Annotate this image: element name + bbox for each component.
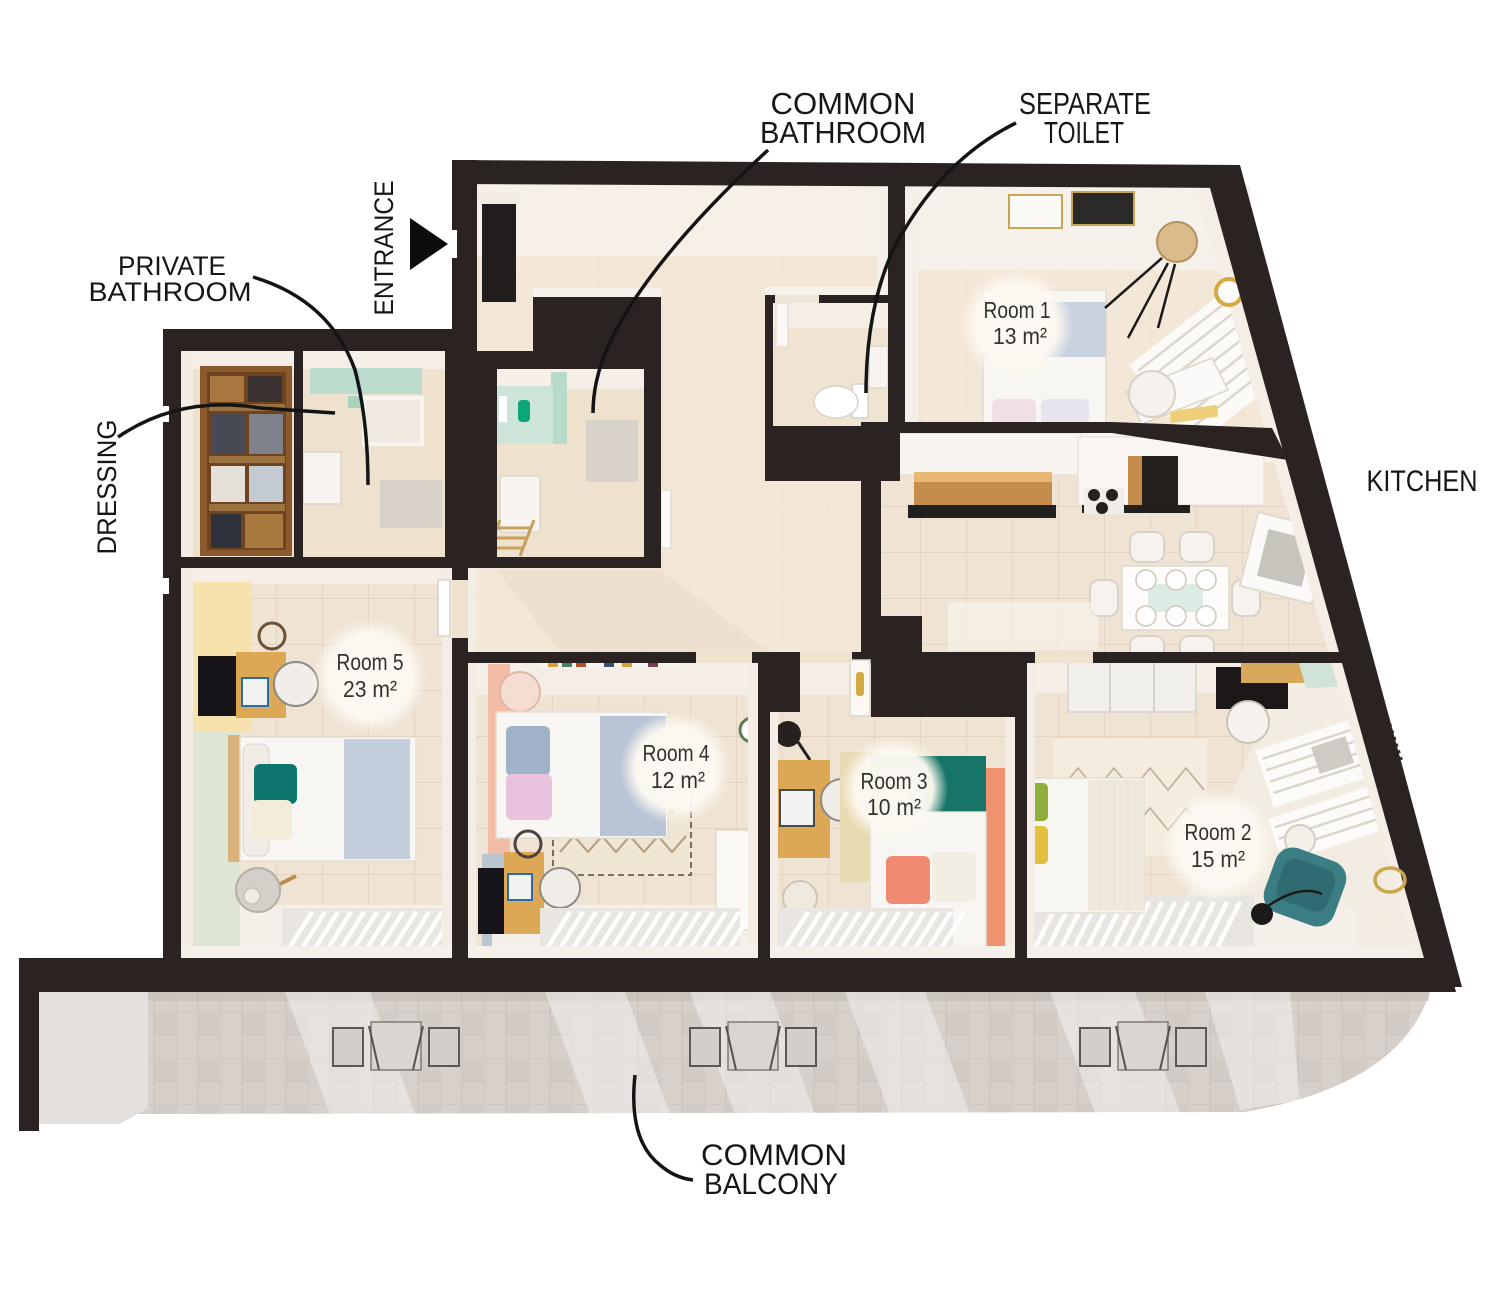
- svg-text:Room 3: Room 3: [861, 768, 928, 794]
- svg-text:10 m²: 10 m²: [867, 794, 921, 820]
- svg-text:23 m²: 23 m²: [343, 676, 397, 702]
- svg-text:ENTRANCE: ENTRANCE: [369, 181, 399, 316]
- svg-text:BALCONY: BALCONY: [704, 1168, 838, 1201]
- svg-text:BATHROOM: BATHROOM: [89, 277, 252, 307]
- svg-text:KITCHEN: KITCHEN: [1367, 465, 1478, 498]
- svg-text:DRESSING: DRESSING: [92, 420, 122, 555]
- svg-text:TOILET: TOILET: [1044, 115, 1124, 150]
- svg-text:Room 4: Room 4: [643, 740, 710, 766]
- svg-text:12 m²: 12 m²: [651, 767, 705, 793]
- svg-text:13 m²: 13 m²: [993, 323, 1047, 349]
- svg-text:Room 5: Room 5: [337, 649, 404, 675]
- svg-text:BATHROOM: BATHROOM: [760, 115, 926, 150]
- svg-text:Room 2: Room 2: [1185, 819, 1252, 845]
- svg-text:15 m²: 15 m²: [1191, 846, 1245, 872]
- svg-text:Room 1: Room 1: [984, 297, 1051, 323]
